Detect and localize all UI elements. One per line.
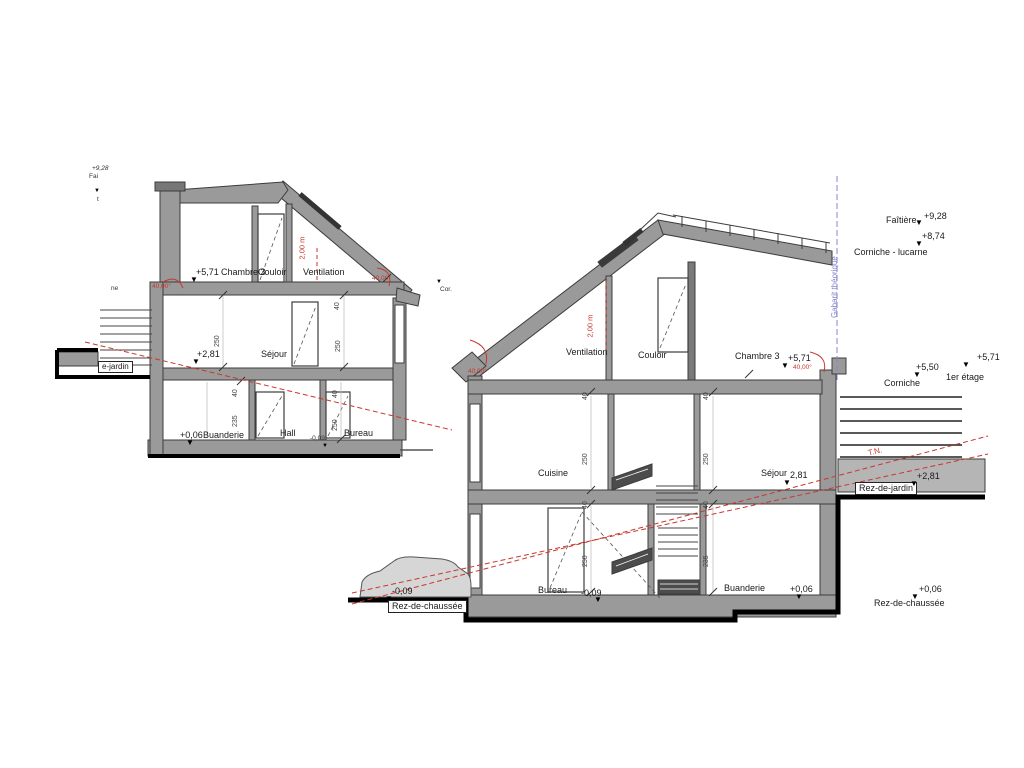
left-clipped-ridge-label: Fai xyxy=(89,174,98,181)
dim-40: 40 xyxy=(582,392,589,400)
dim-40: 40 xyxy=(703,501,710,509)
dim-235: 235 xyxy=(703,555,710,567)
left-room-bureau: Bureau xyxy=(344,429,373,438)
dim-250: 250 xyxy=(214,335,221,347)
level-marker-icon: ▼ xyxy=(322,443,328,449)
right-sejour-level: 2,81 xyxy=(790,471,808,480)
left-clipped-text: t xyxy=(97,197,99,204)
right-corniche-lucarne-label: Corniche - lucarne xyxy=(854,248,928,257)
right-room-chambre3: Chambre 3 xyxy=(735,352,780,361)
level-marker-icon: ▼ xyxy=(915,219,923,227)
left-room-hall: Hall xyxy=(280,429,296,438)
dim-40: 40 xyxy=(703,392,710,400)
dim-40: 40 xyxy=(334,302,341,310)
level-marker-icon: ▼ xyxy=(910,480,918,488)
level-marker-icon: ▼ xyxy=(783,479,791,487)
right-corniche-label: Corniche xyxy=(884,379,920,388)
right-faitiere-value: +9,28 xyxy=(924,212,947,221)
dim-235: 235 xyxy=(232,415,239,427)
left-level-jardin: +2,81 xyxy=(197,350,220,359)
level-marker-icon: ▼ xyxy=(795,593,803,601)
level-marker-icon: ▼ xyxy=(190,276,198,284)
dim-250: 250 xyxy=(582,453,589,465)
right-room-couloir: Couloir xyxy=(638,351,667,360)
right-room-sejour: Séjour xyxy=(761,469,787,478)
right-etage1-value: +5,71 xyxy=(977,353,1000,362)
level-marker-icon: ▼ xyxy=(962,361,970,369)
right-roof-angle-right: 40,00° xyxy=(793,365,812,372)
right-room-buanderie: Buanderie xyxy=(724,584,765,593)
left-room-ventilation: Ventilation xyxy=(303,268,345,277)
right-faitiere-label: Faîtière xyxy=(886,216,917,225)
dim-250: 250 xyxy=(335,340,342,352)
right-jardin-value: +2,81 xyxy=(917,472,940,481)
right-corniche-lucarne-value: +8,74 xyxy=(922,232,945,241)
level-marker-icon: ▼ xyxy=(94,188,100,194)
right-rdc-left-tag: Rez-de-chaussée xyxy=(388,600,467,613)
left-roof-angle-left: 40,00° xyxy=(152,284,171,291)
right-level-etage-int: +5,71 xyxy=(788,354,811,363)
left-level-neg: -0,09 xyxy=(310,436,325,443)
left-building-section xyxy=(57,181,452,456)
left-level-etage: +5,71 xyxy=(196,268,219,277)
right-roof-angle-left: 40,00° xyxy=(468,369,487,376)
dim-250: 250 xyxy=(332,419,339,431)
level-marker-icon: ▼ xyxy=(594,596,602,604)
right-room-bureau: Bureau xyxy=(538,586,567,595)
right-rdc-right-value: +0,06 xyxy=(919,585,942,594)
right-room-ventilation: Ventilation xyxy=(566,348,608,357)
level-marker-icon: ▼ xyxy=(192,358,200,366)
right-room-cuisine: Cuisine xyxy=(538,469,568,478)
right-rez-de-jardin-tag: Rez-de-jardin xyxy=(855,482,917,495)
right-building-section xyxy=(348,176,988,620)
right-etage1-label: 1er étage xyxy=(946,373,984,382)
dim-40: 40 xyxy=(582,501,589,509)
dim-250: 250 xyxy=(703,453,710,465)
left-room-sejour: Séjour xyxy=(261,350,287,359)
right-rdc-right-label: Rez-de-chaussée xyxy=(874,599,945,608)
left-room-couloir: Couloir xyxy=(258,268,287,277)
right-rdc-left-value: -0,09 xyxy=(392,587,413,596)
left-corniche-clipped: Cor. xyxy=(440,287,452,294)
left-roof-height: 2,00 m xyxy=(299,237,307,260)
level-marker-icon: ▼ xyxy=(436,279,442,285)
left-roof-angle-right: 40,00° xyxy=(372,276,391,283)
gabarit-theorique-label: Gabarit théorique xyxy=(831,256,839,318)
building-sections-geometry xyxy=(0,0,1024,768)
left-room-buanderie: Buanderie xyxy=(203,431,244,440)
left-clipped-ne: ne xyxy=(111,286,118,293)
level-marker-icon: ▼ xyxy=(781,362,789,370)
left-rez-de-jardin-tag: e-jardin xyxy=(98,361,133,373)
left-clipped-ridge-value: +9,28 xyxy=(92,166,108,173)
dim-250: 250 xyxy=(582,555,589,567)
dim-40: 40 xyxy=(332,390,339,398)
dim-40: 40 xyxy=(232,389,239,397)
section-drawing-sheet: +9,28 Fai ▼ t ne +5,71 ▼ Chambre 3 Coulo… xyxy=(0,0,1024,768)
level-marker-icon: ▼ xyxy=(186,439,194,447)
right-roof-height: 2,00 m xyxy=(587,315,595,338)
